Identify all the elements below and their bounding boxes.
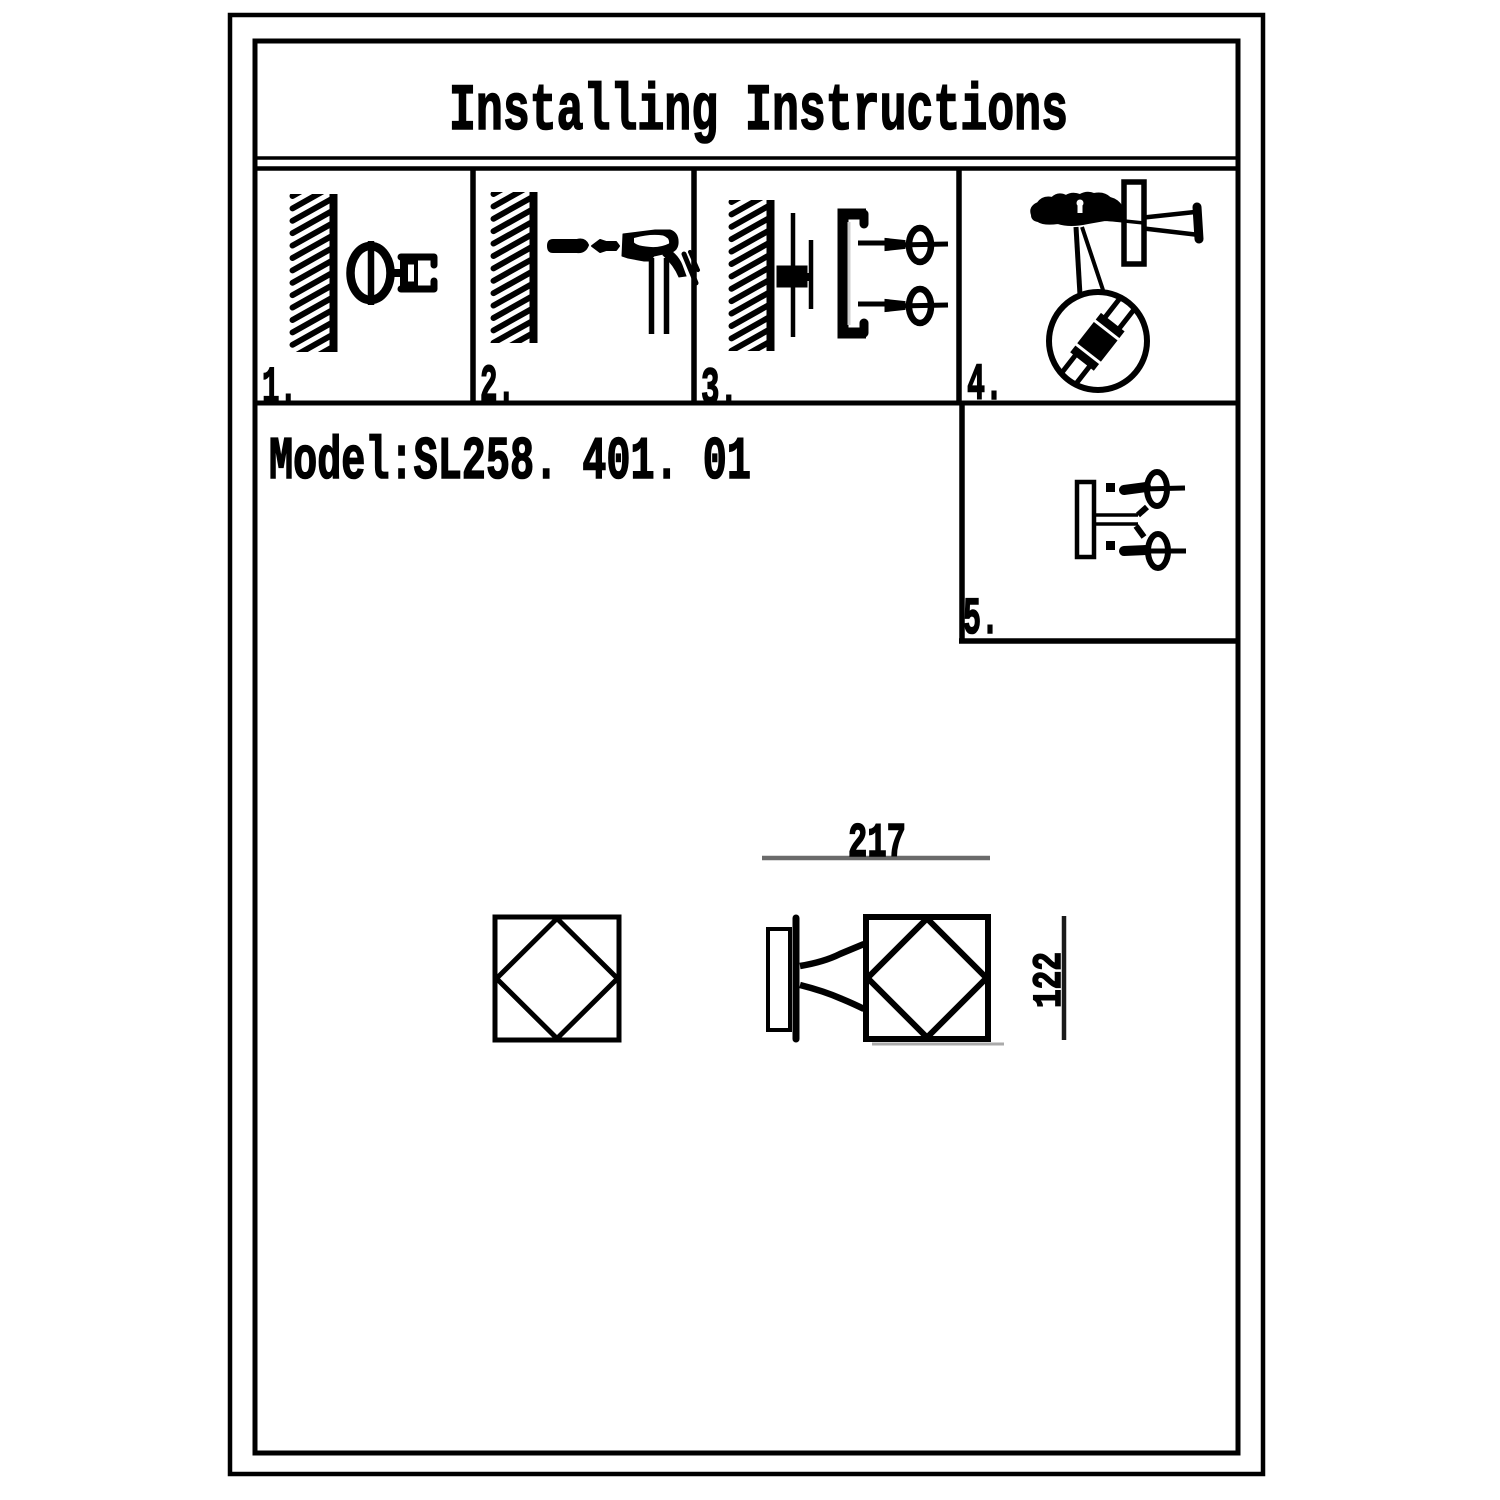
svg-text:5.: 5.	[963, 590, 999, 649]
svg-text:Installing Instructions: Installing Instructions	[449, 74, 1068, 149]
svg-text:4.: 4.	[967, 356, 1003, 415]
svg-text:Model:SL258. 401. 01: Model:SL258. 401. 01	[269, 429, 751, 497]
svg-text:3.: 3.	[701, 360, 738, 419]
svg-text:1.: 1.	[262, 359, 297, 418]
svg-text:2.: 2.	[480, 357, 515, 416]
svg-text:217: 217	[848, 817, 906, 871]
svg-text:122: 122	[1028, 952, 1073, 1008]
